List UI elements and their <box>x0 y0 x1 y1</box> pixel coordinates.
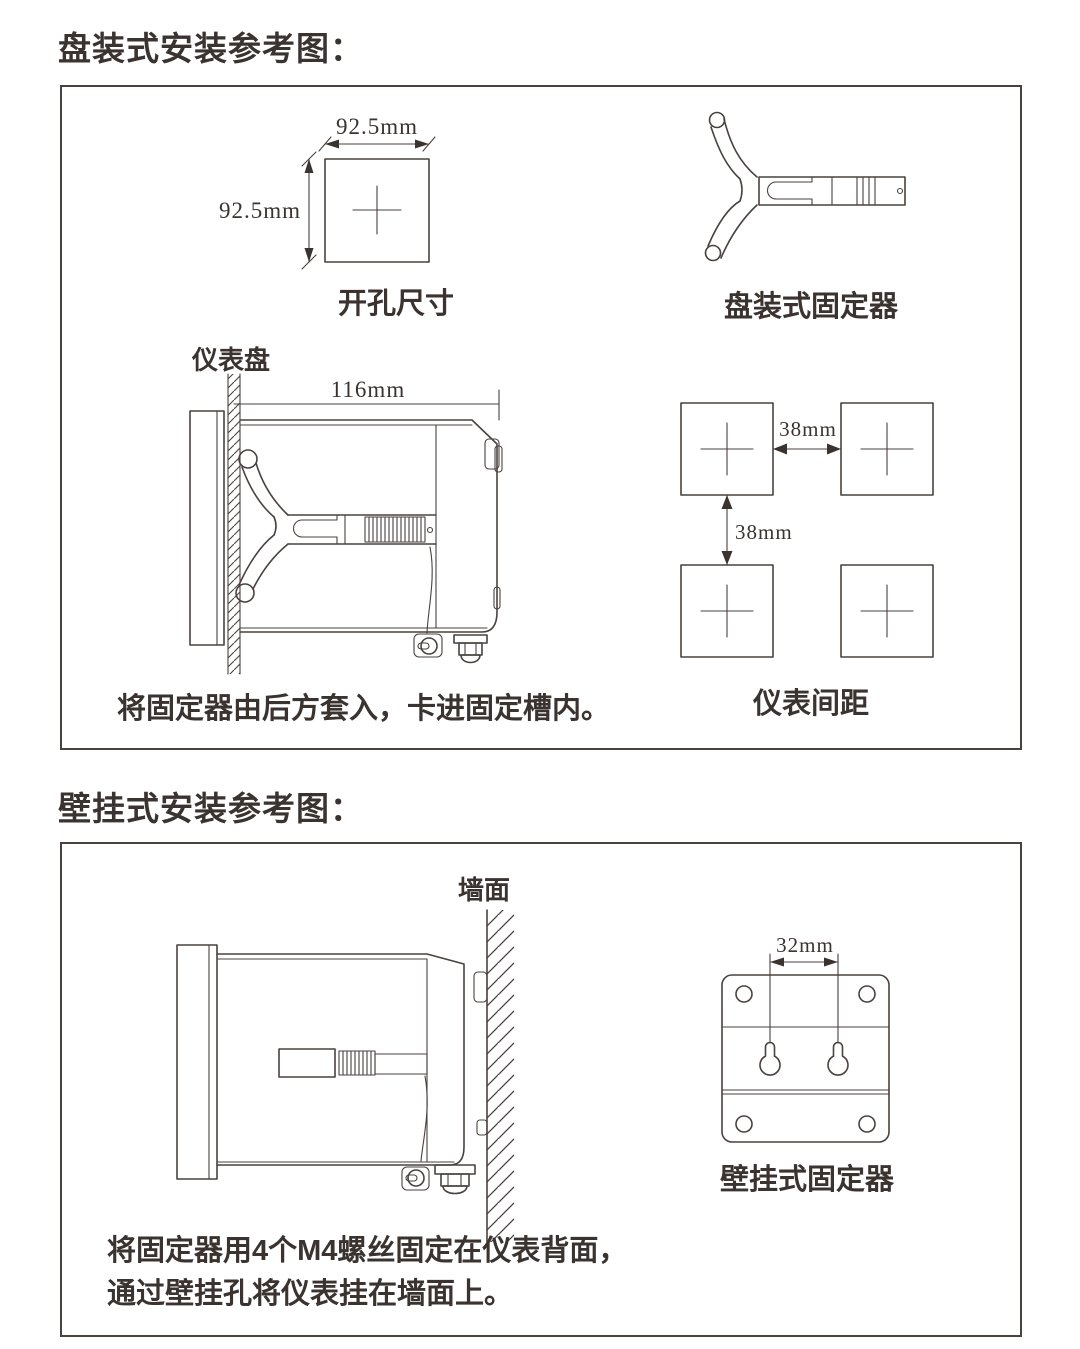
bezel <box>190 411 224 645</box>
manual-page: 盘装式安装参考图： 92.5mm 92.5mm 开孔尺寸 <box>0 0 1080 1349</box>
keyhole-slot <box>760 1043 780 1076</box>
fixer-caption: 盘装式固定器 <box>721 283 901 325</box>
fixer-end-hole <box>898 189 903 194</box>
wall-clip <box>477 1120 487 1135</box>
fixer-fork-slot <box>294 515 346 544</box>
fixer-arm <box>724 119 757 177</box>
fixer-arm <box>708 201 740 246</box>
cable-gland-lines <box>465 643 476 655</box>
bracket-fold-lines <box>722 1027 889 1094</box>
cable-line <box>427 547 432 633</box>
hatch-mask <box>514 904 544 1248</box>
bracket-dim-text: 32mm <box>776 933 834 957</box>
fixer-arm <box>239 535 274 585</box>
spacing-diagram: 38mm 38mm <box>672 393 972 673</box>
bracket-extension-lines <box>770 954 838 1043</box>
screw-head <box>408 1170 424 1186</box>
wall-side-view <box>162 899 532 1209</box>
arrow-left-icon <box>773 444 787 455</box>
fixer-arm <box>256 463 288 515</box>
wall-hatch <box>487 910 517 1242</box>
depth-dim-text: 116mm <box>331 377 405 402</box>
shaft-block <box>279 1049 335 1077</box>
bracket-screw-hole <box>859 1116 875 1132</box>
cutout-height-dim-text: 92.5mm <box>219 198 301 223</box>
screw-slot <box>418 643 429 649</box>
center-cross-icon <box>701 423 913 637</box>
arrow-right-icon <box>827 444 841 455</box>
v-spacing-text: 38mm <box>735 520 793 544</box>
cutout-width-dim-text: 92.5mm <box>336 114 418 139</box>
arrow-down-icon <box>305 248 314 262</box>
cable-gland-flange <box>435 1165 475 1174</box>
panel-side-view: 116mm <box>162 337 522 682</box>
panel-hatch <box>228 374 240 674</box>
cable-gland-dome <box>461 655 480 663</box>
cable-line <box>421 1076 427 1161</box>
wall-mount-title: 壁挂式安装参考图： <box>58 782 364 830</box>
fixer-ribbed-section <box>365 517 425 542</box>
cutout-cross-icon <box>353 186 401 234</box>
bezel <box>177 945 217 1179</box>
ribbed-section <box>339 1051 375 1075</box>
panel-mount-caption: 将固定器由后方套入，卡进固定槽内。 <box>117 685 610 727</box>
cable-gland-dome <box>443 1186 467 1194</box>
bracket-caption: 壁挂式固定器 <box>717 1156 897 1198</box>
panel-mount-title: 盘装式安装参考图： <box>58 22 364 70</box>
cable-gland-lines <box>448 1174 461 1186</box>
wall-clip <box>474 972 487 1002</box>
cable-gland-flange <box>454 635 487 643</box>
shaft-extension <box>375 1054 427 1074</box>
fixer-fork-slot <box>768 177 833 205</box>
fixer-arm <box>711 127 740 179</box>
cutout-caption: 开孔尺寸 <box>316 280 476 322</box>
body-inner-lines <box>240 425 487 628</box>
fixer-diagram <box>697 107 912 277</box>
bracket-screw-hole <box>736 986 752 1002</box>
bracket-screw-hole <box>736 1116 752 1132</box>
spacing-caption: 仪表间距 <box>751 680 871 722</box>
wall-mount-figure-box: 墙面 <box>60 842 1022 1337</box>
fixer-end-hole <box>428 528 433 533</box>
fixer-shaft <box>288 515 436 544</box>
arrow-right-icon <box>824 958 838 967</box>
wall-caption-line1: 将固定器用4个M4螺丝固定在仪表背面， <box>107 1230 627 1273</box>
panel-mount-figure-box: 92.5mm 92.5mm 开孔尺寸 盘装式固定器 仪表盘 <box>60 85 1022 750</box>
arrow-left-icon <box>770 958 784 967</box>
arrow-up-icon <box>722 495 733 509</box>
h-spacing-text: 38mm <box>779 417 837 441</box>
cable-gland-body <box>441 1174 469 1186</box>
fixer-top-knob <box>710 113 725 128</box>
fixer-hub <box>274 517 276 535</box>
fixer-top-knob <box>239 450 257 468</box>
keyhole-slot <box>828 1043 848 1076</box>
cable-gland-body <box>459 643 482 655</box>
fixer-thread-lines <box>857 177 875 205</box>
bracket-screw-hole <box>859 986 875 1002</box>
wall-mount-caption: 将固定器用4个M4螺丝固定在仪表背面， 通过壁挂孔将仪表挂在墙面上。 <box>107 1230 627 1316</box>
fixer-bottom-knob <box>706 246 721 261</box>
arrow-up-icon <box>305 159 314 173</box>
fixer-hub <box>740 179 742 201</box>
arrow-down-icon <box>722 551 733 565</box>
bracket-diagram: 32mm <box>712 924 907 1159</box>
wall-caption-line2: 通过壁挂孔将仪表挂在墙面上。 <box>107 1273 627 1316</box>
